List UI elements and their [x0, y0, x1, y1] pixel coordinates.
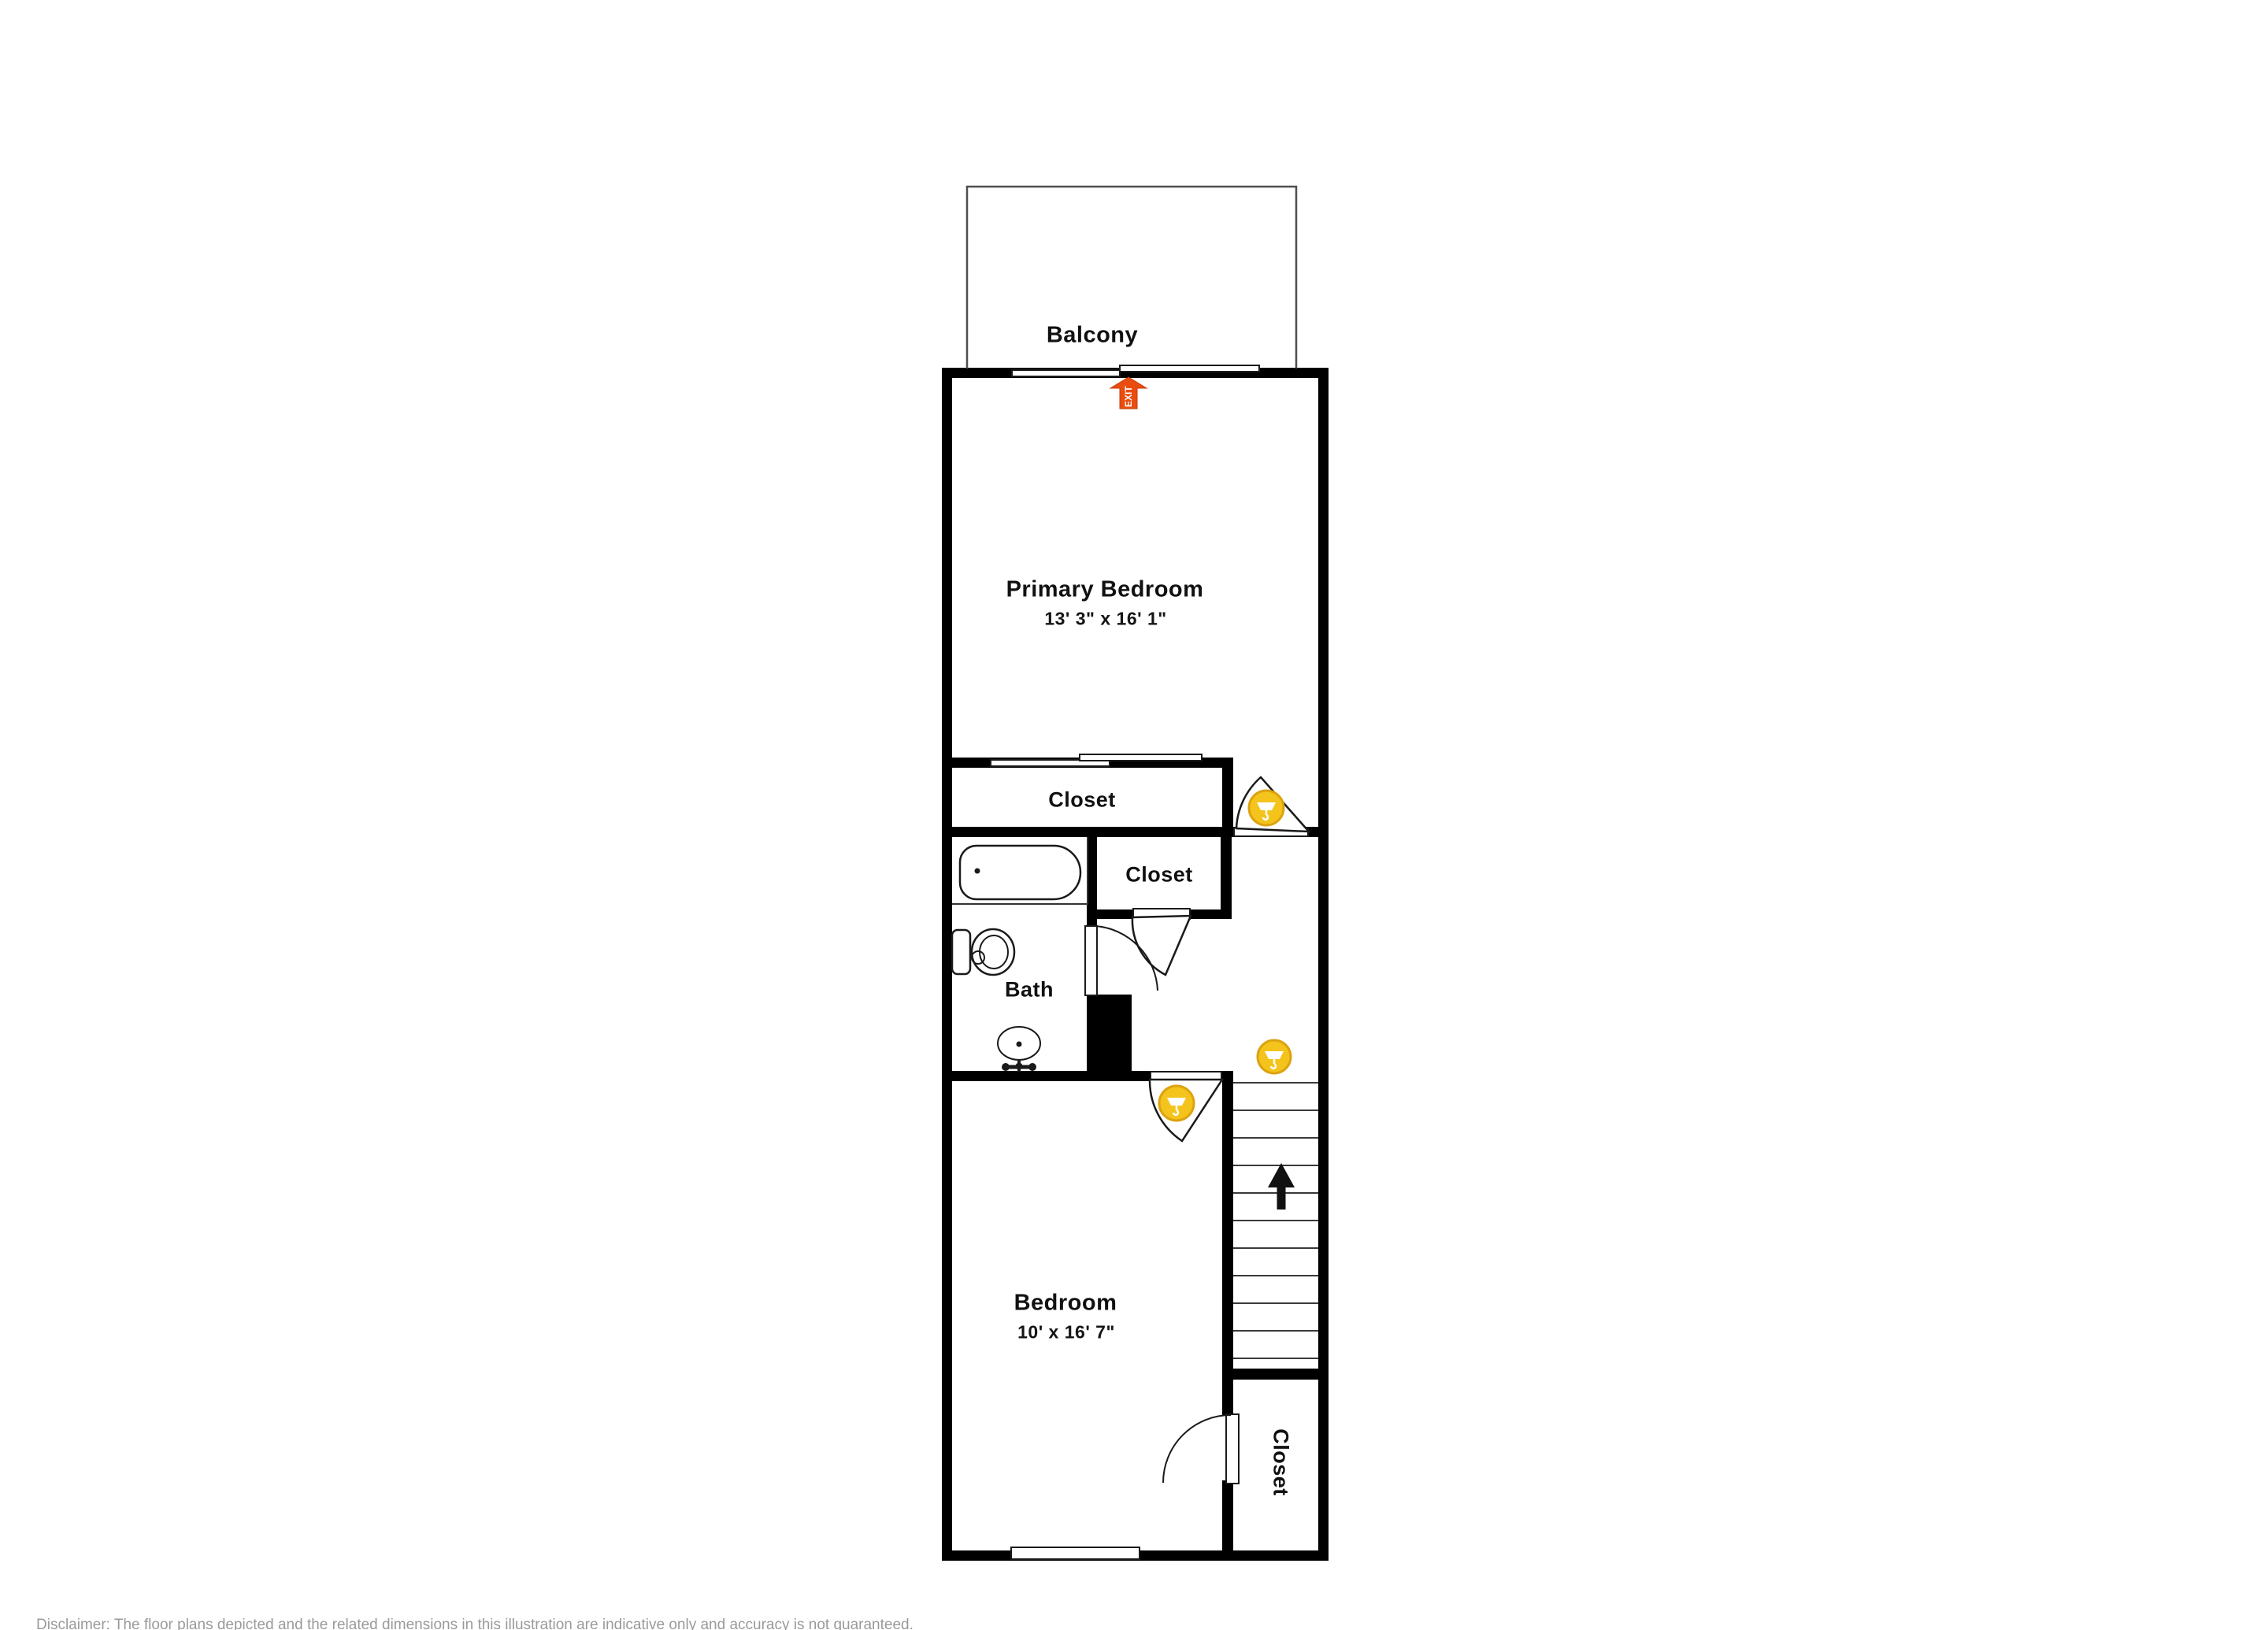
bedroom-dimensions: 10' x 16' 7"	[1017, 1322, 1115, 1343]
bedroom-window	[1010, 1547, 1140, 1560]
stairs-up-arrow-icon	[1268, 1163, 1295, 1210]
wall-hall-closet-bottom-left	[1087, 909, 1132, 919]
bath-door-swing	[1095, 926, 1158, 991]
wall-stairs-left	[1222, 1071, 1233, 1378]
sink-drain-icon	[1017, 1042, 1022, 1047]
tour-point-icon[interactable]	[1249, 791, 1284, 825]
hall-closet-door-threshold	[1132, 908, 1191, 920]
toilet-bowl-icon	[972, 929, 1014, 975]
bedroom-closet-door-leaf	[1225, 1413, 1240, 1484]
primary-bedroom-label: Primary Bedroom	[1006, 577, 1204, 603]
sink-handle-left-icon	[1002, 1063, 1010, 1071]
hall-closet-label: Closet	[1125, 863, 1193, 887]
toilet-tank-icon	[952, 930, 970, 974]
exit-arrow-icon	[1110, 377, 1147, 409]
tour-point-icon[interactable]	[1258, 1040, 1291, 1073]
bath-door-leaf	[1084, 925, 1098, 996]
bedroom-door-threshold	[1150, 1071, 1222, 1081]
wall-closet-vestibule	[1222, 758, 1233, 837]
bath-label: Bath	[1005, 978, 1054, 1002]
floorplan-canvas: EXIT Balcony Primary Bedroom 13' 3" x 16…	[0, 0, 2268, 1630]
tub-drain-icon	[975, 869, 980, 874]
hall-closet-door-swing	[1132, 916, 1191, 975]
sink-spout-icon	[1016, 1063, 1023, 1070]
wall-bedroom-closet-left-lower	[1222, 1480, 1233, 1550]
wall-hall-closet-bottom-right	[1191, 909, 1232, 919]
bathtub-icon	[960, 846, 1080, 899]
fixtures-overlay: EXIT	[0, 0, 2268, 1630]
primary-closet-label: Closet	[1048, 788, 1116, 813]
wall-bath-bottom	[942, 1071, 1150, 1081]
bedroom-label: Bedroom	[1014, 1291, 1117, 1317]
stair-treads	[1233, 1083, 1318, 1358]
wall-entry-door-stub	[1309, 827, 1329, 837]
wall-closet-bottom	[942, 827, 1235, 837]
wall-bedroom-closet-left-upper	[1222, 1378, 1233, 1415]
exit-arrow-label: EXIT	[1123, 386, 1134, 407]
sink-handle-right-icon	[1028, 1063, 1036, 1071]
bedroom-closet-door-swing	[1163, 1415, 1231, 1483]
wall-outer-right	[1318, 368, 1329, 1561]
sink-basin-icon	[998, 1027, 1040, 1060]
primary-closet-slider-right	[1079, 754, 1203, 761]
disclaimer-text: Disclaimer: The floor plans depicted and…	[36, 1617, 913, 1630]
wall-outer-left	[942, 368, 952, 1561]
bedroom-closet-label: Closet	[1269, 1428, 1293, 1496]
tub-enclosure-line	[952, 837, 1088, 904]
balcony-slider-panel-right	[1119, 365, 1260, 372]
entry-door-threshold	[1233, 827, 1309, 837]
toilet-flush-icon	[972, 951, 984, 964]
primary-bedroom-dimensions: 13' 3" x 16' 1"	[1044, 609, 1166, 630]
balcony-label: Balcony	[1047, 323, 1138, 349]
wall-stairs-bottom	[1222, 1369, 1329, 1380]
tour-point-icon[interactable]	[1159, 1086, 1194, 1121]
toilet-bowl-inner-icon	[980, 935, 1008, 969]
wall-hall-closet-right	[1221, 827, 1232, 919]
wall-chase-block	[1087, 995, 1132, 1077]
balcony-slider-panel-left	[1011, 369, 1121, 377]
